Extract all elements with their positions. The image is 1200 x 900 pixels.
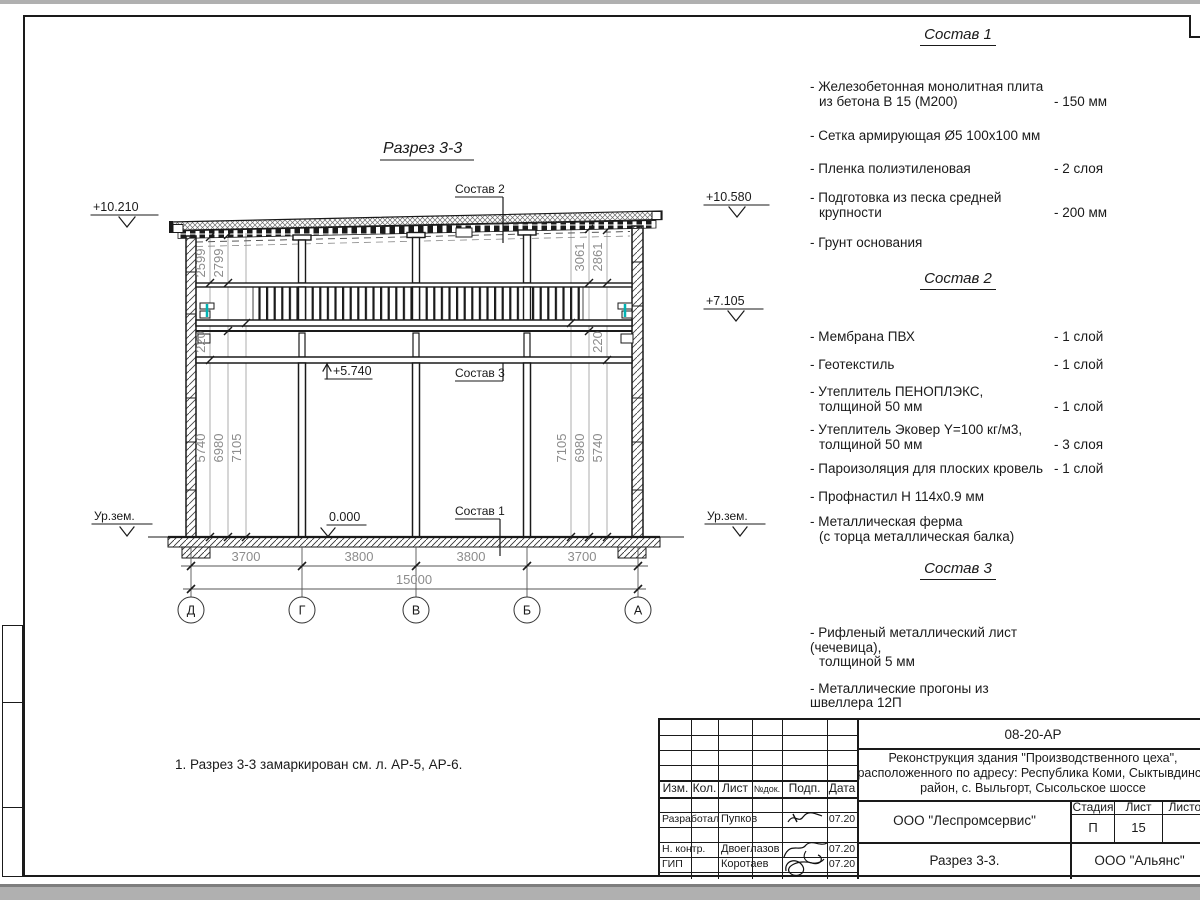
list-item: - Металлические прогоны из швеллера 12П <box>810 682 1140 711</box>
dim: 220 <box>193 331 208 353</box>
sostav3-list: Состав 3 - Рифленый металлический лист (… <box>810 560 1140 711</box>
tb-col-izm: Изм. <box>660 781 691 797</box>
list-item: - Подготовка из песка среднейкрупности -… <box>810 191 1140 220</box>
column <box>413 363 420 537</box>
tb-organization: ООО "Леспромсервис" <box>859 802 1070 840</box>
tb-name-2: Двоеглазов <box>721 843 783 856</box>
callout-sostav2: Состав 2 <box>455 182 505 196</box>
tb-col-kol: Кол. <box>691 781 718 797</box>
dim: 2799 <box>211 249 226 278</box>
roof-box <box>456 228 472 237</box>
elevation-left-top: +10.210 <box>93 200 139 214</box>
signature-1 <box>784 810 826 827</box>
tb-document-code: 08-20-АР <box>859 722 1200 747</box>
left-wall <box>186 236 196 537</box>
axis-label: Б <box>523 604 531 618</box>
tb-name-1: Пупков <box>721 813 779 826</box>
column <box>299 363 306 537</box>
sostav1-title: Состав 1 <box>810 26 1140 46</box>
tb-col-podp: Подп. <box>782 781 827 797</box>
sostav2-title: Состав 2 <box>810 270 1140 290</box>
ground-level-left: Ур.зем. <box>94 509 135 523</box>
title-block: Изм. Кол. Лист №док. Подп. Дата Разработ… <box>658 718 1200 877</box>
dimension-chain: 3700 3800 3800 3700 15000 <box>181 547 648 597</box>
sostav2-list: Состав 2 - Мембрана ПВХ - 1 слой - Геоте… <box>810 270 1140 544</box>
signature-2 <box>778 837 830 879</box>
axis-label: В <box>412 604 420 618</box>
tb-name-3: Коротаев <box>721 858 783 871</box>
tb-company: ООО "Альянс" <box>1072 844 1200 877</box>
elevation-right-top: +10.580 <box>706 190 752 204</box>
dim: 5740 <box>193 434 208 463</box>
sheet-note: 1. Разрез 3-3 замаркирован см. л. АР-5, … <box>175 757 462 772</box>
tb-doc-title: Разрез 3-3. <box>859 844 1070 877</box>
tb-role-1: Разработал <box>662 813 718 826</box>
list-item: - Сетка армирующая Ø5 100х100 мм <box>810 129 1140 144</box>
tb-date-2: 07.20 <box>827 843 857 856</box>
dim: 7105 <box>554 434 569 463</box>
footing-left <box>182 547 210 558</box>
elevation-right-mid: +7.105 <box>706 294 745 308</box>
floor-slab <box>196 357 632 363</box>
list-item: - Утеплитель Эковер Y=100 кг/м3,толщиной… <box>810 423 1140 452</box>
dim: 5740 <box>590 434 605 463</box>
dim: 3061 <box>572 243 587 272</box>
tb-project-line3: район, с. Выльгорт, Сысольское шоссе <box>859 781 1200 796</box>
tb-col-list: Лист <box>718 781 752 797</box>
dim: 7105 <box>229 434 244 463</box>
tb-col-ndok: №док. <box>752 781 782 797</box>
sostav1-list: Состав 1 - Железобетонная монолитная пли… <box>810 26 1140 251</box>
tb-sheet-value: 15 <box>1115 815 1162 841</box>
tb-col-data: Дата <box>827 781 857 797</box>
tb-sheets-label: Листов <box>1163 801 1200 814</box>
axis-label: Г <box>299 604 306 618</box>
dim-span-3: 3800 <box>457 549 486 564</box>
list-item: - Железобетонная монолитная плитаиз бето… <box>810 80 1140 109</box>
sostav3-title: Состав 3 <box>810 560 1140 580</box>
column <box>524 363 531 537</box>
drawing-title: Разрез 3-3 <box>383 140 462 157</box>
axis-bubbles: Д Г В Б А <box>178 597 651 623</box>
tb-role-2: Н. контр. <box>662 843 718 856</box>
callout-sostav1: Состав 1 <box>455 504 505 518</box>
list-item: - Рифленый металлический лист (чечевица)… <box>810 626 1140 670</box>
dim: 2599 <box>193 249 208 278</box>
ground-level-right: Ур.зем. <box>707 509 748 523</box>
tb-stage-value: П <box>1072 815 1114 841</box>
dim: 6980 <box>572 434 587 463</box>
tb-project-line1: Реконструкция здания "Производственного … <box>859 751 1200 766</box>
callout-sostav3: Состав 3 <box>455 366 505 380</box>
dim: 6980 <box>211 434 226 463</box>
list-item: - Профнастил Н 114х0.9 мм <box>810 490 1140 505</box>
tb-sheet-label: Лист <box>1115 801 1162 814</box>
elevation-zero: 0.000 <box>329 510 360 524</box>
extension-lines <box>210 228 607 537</box>
list-item: - Грунт основания <box>810 236 1140 251</box>
dim-ticks <box>206 225 611 541</box>
callouts: Состав 2 Состав 3 Состав 1 <box>455 182 505 556</box>
tb-stage-label: Стадия <box>1072 801 1114 814</box>
dim-span-4: 3700 <box>568 549 597 564</box>
list-item: - Мембрана ПВХ - 1 слой <box>810 330 1140 345</box>
drawing-sheet: { "colors": { "line": "#1a1a1a", "dim": … <box>0 0 1200 900</box>
tb-date-3: 07.20 <box>827 858 857 871</box>
list-item: - Утеплитель ПЕНОПЛЭКС,толщиной 50 мм - … <box>810 385 1140 414</box>
dim: 220 <box>590 331 605 353</box>
vertical-dims: 2599 2799 220 5740 6980 7105 3061 2861 2… <box>193 243 605 463</box>
roof-left-endplate <box>169 221 173 233</box>
list-item: - Геотекстиль - 1 слой <box>810 358 1140 373</box>
list-item: - Металлическая ферма(с торца металличес… <box>810 515 1140 544</box>
dim-span-1: 3700 <box>232 549 261 564</box>
elevation-floor: +5.740 <box>333 364 372 378</box>
footing-right <box>618 547 646 558</box>
roof-posts <box>293 230 536 283</box>
axis-label: А <box>634 604 643 618</box>
dim-span-2: 3800 <box>345 549 374 564</box>
tb-project-line2: расположенного по адресу: Республика Ком… <box>853 766 1200 781</box>
dim: 2861 <box>590 243 605 272</box>
list-item: - Пленка полиэтиленовая - 2 слоя <box>810 162 1140 177</box>
list-item: - Пароизоляция для плоских кровель - 1 с… <box>810 462 1140 477</box>
dim-total: 15000 <box>396 572 432 587</box>
tb-role-3: ГИП <box>662 858 718 871</box>
axis-label: Д <box>187 604 196 618</box>
tb-date-1: 07.20 <box>827 813 857 826</box>
